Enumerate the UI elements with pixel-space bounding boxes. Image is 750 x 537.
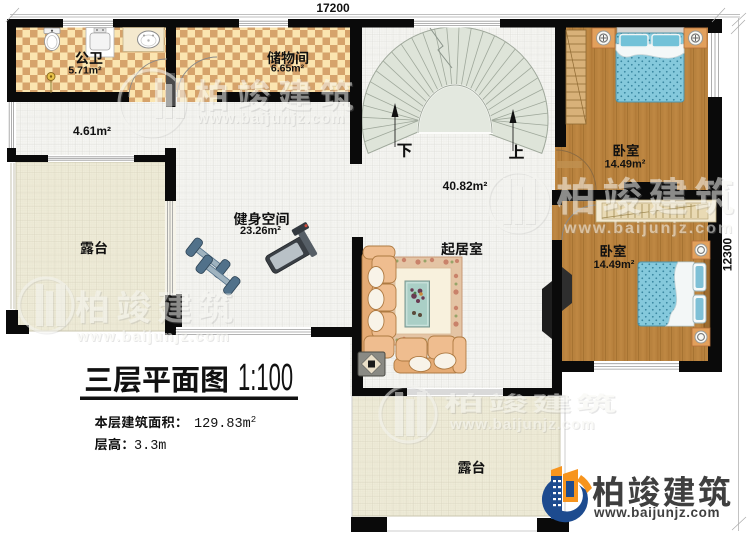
svg-text:14.49m²: 14.49m² (594, 259, 635, 271)
svg-text:12300: 12300 (721, 237, 735, 271)
svg-text:3.3m: 3.3m (134, 439, 166, 454)
svg-text:www.baijunjz.com: www.baijunjz.com (196, 110, 346, 127)
svg-text:www.baijunjz.com: www.baijunjz.com (76, 328, 230, 345)
svg-text:4.61m²: 4.61m² (73, 124, 111, 138)
svg-text:www.baijunjz.com: www.baijunjz.com (593, 505, 720, 520)
svg-text:www.baijunjz.com: www.baijunjz.com (563, 220, 734, 237)
svg-text:129.83m2: 129.83m2 (194, 415, 256, 432)
svg-text:5.71m²: 5.71m² (68, 65, 102, 77)
svg-text:1:100: 1:100 (238, 356, 293, 399)
svg-text:www.baijunjz.com: www.baijunjz.com (449, 416, 595, 433)
svg-text:6.65m²: 6.65m² (271, 63, 305, 75)
svg-text:23.26m²: 23.26m² (240, 225, 281, 237)
svg-text:40.82m²: 40.82m² (443, 179, 488, 193)
svg-text:17200: 17200 (316, 1, 350, 15)
svg-text:14.49m²: 14.49m² (605, 159, 646, 171)
